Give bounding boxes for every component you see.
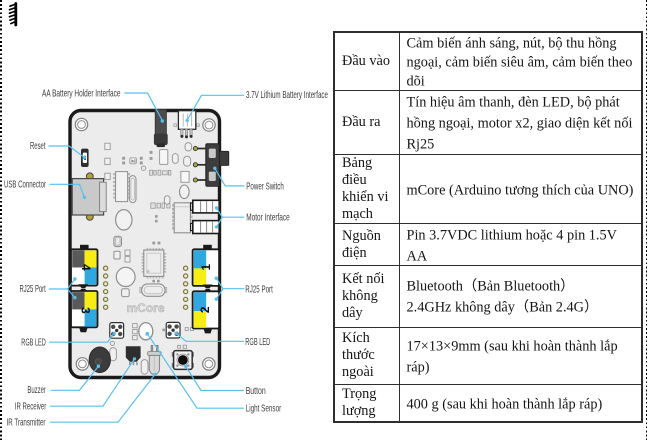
svg-text:Button: Button xyxy=(246,386,266,397)
svg-text:IR Receiver: IR Receiver xyxy=(15,401,47,412)
svg-text:4: 4 xyxy=(79,264,93,271)
svg-text:2: 2 xyxy=(198,306,212,313)
svg-text:IR Transmitter: IR Transmitter xyxy=(7,417,46,428)
svg-text:USB Connector: USB Connector xyxy=(4,179,46,190)
svg-text:3: 3 xyxy=(79,307,93,314)
svg-text:Light Sensor: Light Sensor xyxy=(246,403,282,414)
svg-text:RJ25 Port: RJ25 Port xyxy=(20,284,46,295)
svg-text:AA Battery Holder Interface: AA Battery Holder Interface xyxy=(42,89,121,100)
svg-text:Buzzer: Buzzer xyxy=(27,385,46,396)
svg-text:mCore: mCore xyxy=(126,301,164,315)
svg-text:Motor Interface: Motor Interface xyxy=(246,213,290,224)
svg-text:RGB LED: RGB LED xyxy=(245,337,270,348)
svg-text:Power Switch: Power Switch xyxy=(246,181,284,192)
svg-text:1: 1 xyxy=(199,263,213,270)
svg-text:RGB LED: RGB LED xyxy=(21,337,46,348)
svg-text:Reset: Reset xyxy=(30,141,46,152)
svg-text:3.7V Lithium Battery Interface: 3.7V Lithium Battery Interface xyxy=(246,90,328,101)
svg-text:RJ25 Port: RJ25 Port xyxy=(245,284,273,295)
